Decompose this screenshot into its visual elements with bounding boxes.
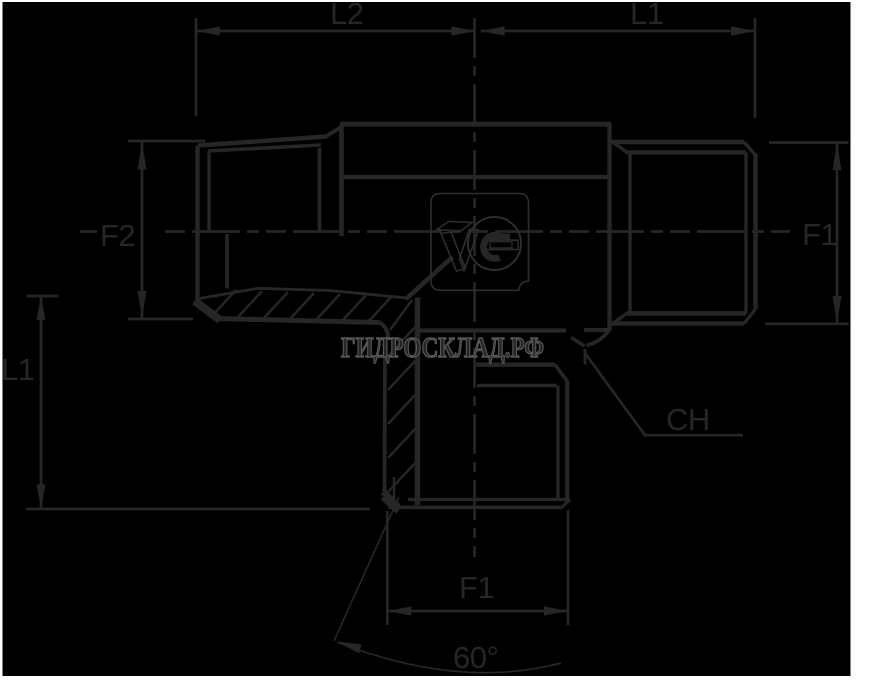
svg-text:L2: L2 bbox=[330, 0, 363, 31]
svg-text:F1: F1 bbox=[459, 570, 494, 605]
svg-text:CH: CH bbox=[666, 402, 710, 437]
svg-text:L1: L1 bbox=[1, 352, 34, 387]
svg-text:F2: F2 bbox=[100, 218, 135, 253]
svg-text:F1: F1 bbox=[802, 217, 837, 252]
svg-text:ГИДРОСКЛАД.РФ: ГИДРОСКЛАД.РФ bbox=[341, 332, 544, 364]
svg-text:L1: L1 bbox=[630, 0, 663, 31]
svg-text:60°: 60° bbox=[453, 640, 498, 675]
